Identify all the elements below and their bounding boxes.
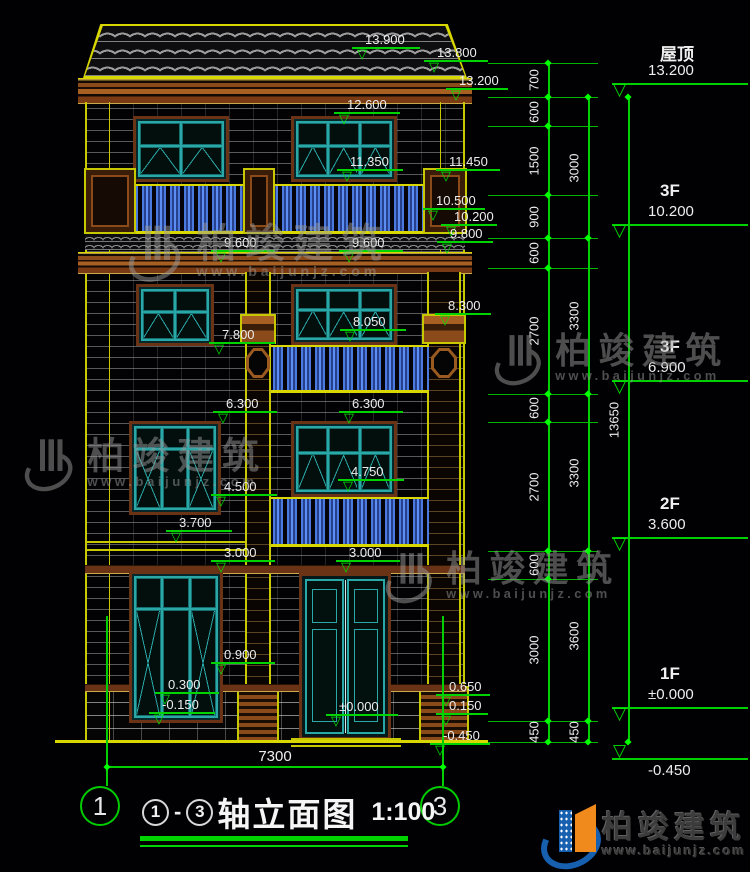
- floor-triangle-icon: ▽: [613, 82, 626, 97]
- floor-name: 3F: [660, 181, 680, 201]
- elevation-triangle-icon: ▽: [216, 560, 226, 573]
- elevation-marker: 4.750▽: [338, 464, 404, 481]
- elevation-marker: 8.050▽: [340, 314, 406, 331]
- pilaster-center-medallion: [246, 348, 270, 378]
- chain-tick: [544, 418, 551, 425]
- elevation-triangle-icon: ▽: [154, 712, 164, 725]
- elevation-marker: 12.600▽: [334, 97, 400, 114]
- elevation-marker: 0.300▽: [155, 677, 219, 694]
- elevation-marker: -0.150▽: [149, 697, 215, 714]
- window-pane: [298, 428, 327, 452]
- watermark-text: 柏竣建筑www.baijunjz.com: [555, 331, 728, 383]
- elevation-marker: 11.350▽: [337, 154, 403, 171]
- elevation-triangle-icon: ▽: [435, 743, 445, 756]
- footer-site: www.baijunjz.com: [602, 843, 746, 858]
- chain-dim-value: 600: [527, 242, 542, 264]
- cad-elevation-drawing: 7300 1 3 1 - 3 轴立面图 1:100 柏竣建筑 www.baiju…: [0, 0, 750, 872]
- elevation-triangle-icon: ▽: [357, 47, 367, 60]
- elevation-triangle-icon: ▽: [345, 329, 355, 342]
- chain-tick: [584, 738, 591, 745]
- floor-triangle-icon: ▽: [613, 706, 626, 721]
- chain-tick: [584, 234, 591, 241]
- axis-line-1: [106, 616, 108, 786]
- elevation-value: 10.200: [441, 209, 497, 224]
- elevation-marker: 13.200▽: [446, 73, 508, 90]
- floor-level-line: [612, 83, 748, 85]
- chain-tick: [544, 738, 551, 745]
- elevation-triangle-icon: ▽: [216, 494, 226, 507]
- elevation-triangle-icon: ▽: [344, 411, 354, 424]
- watermark-brand: 柏竣建筑: [446, 549, 619, 588]
- chain-dim-value: 3000: [527, 636, 542, 665]
- watermark-text: 柏竣建筑www.baijunjz.com: [196, 221, 390, 279]
- window-pane: [361, 123, 390, 145]
- logo-orange-tower-icon: [575, 804, 596, 852]
- watermark-text: 柏竣建筑www.baijunjz.com: [446, 549, 619, 601]
- elevation-marker: ±0.000▽: [326, 699, 398, 716]
- watermark-site: www.baijunjz.com: [555, 369, 728, 383]
- window-pane: [176, 291, 207, 311]
- watermark: 柏竣建筑www.baijunjz.com: [24, 434, 267, 490]
- elevation-marker: 13.900▽: [352, 32, 420, 49]
- elevation-triangle-icon: ▽: [451, 88, 461, 101]
- window-pane: [329, 291, 358, 309]
- extension-line: [488, 63, 598, 64]
- elevation-value: 3.700: [166, 515, 232, 530]
- window-pane: [143, 313, 174, 339]
- title-axis-to-circle: 3: [186, 799, 213, 826]
- elevation-triangle-icon: ▽: [440, 313, 450, 326]
- extension-line: [488, 97, 598, 98]
- window-pane: [298, 291, 327, 309]
- chain-dim-value: 3300: [567, 458, 582, 487]
- extension-line: [488, 742, 598, 743]
- chain-line: [548, 63, 550, 742]
- elevation-value: 0.900: [211, 647, 275, 662]
- elevation-marker: 10.500▽: [423, 193, 485, 210]
- title-axis-from-circle: 1: [142, 799, 169, 826]
- watermark-site: www.baijunjz.com: [196, 263, 390, 279]
- chain-dim-value: 450: [527, 721, 542, 743]
- chain-tick: [544, 717, 551, 724]
- chain-tick: [544, 390, 551, 397]
- elevation-value: 13.200: [446, 73, 508, 88]
- chain-dim-value: 450: [567, 721, 582, 743]
- chain-dim-value: 13650: [607, 401, 622, 437]
- watermark-brand: 柏竣建筑: [87, 435, 267, 475]
- window-pane: [163, 578, 188, 608]
- window-pane: [140, 123, 180, 145]
- chain-dim-value: 1500: [527, 146, 542, 175]
- axis-bubble-1: 1: [80, 786, 120, 826]
- elevation-triangle-icon: ▽: [441, 169, 451, 182]
- window-pane: [298, 454, 327, 490]
- floor-elevation: ±0.000: [648, 686, 694, 703]
- balcony-3f-right-railing: [271, 345, 429, 393]
- window-pane: [298, 147, 327, 175]
- elevation-marker: 0.150▽: [436, 698, 488, 715]
- watermark-site: www.baijunjz.com: [446, 587, 619, 601]
- title-underline-thin: [140, 845, 408, 847]
- window-pane: [298, 123, 327, 145]
- extension-line: [488, 394, 598, 395]
- window-pane: [329, 428, 358, 452]
- footer-brand: 柏竣建筑: [602, 802, 746, 847]
- elevation-triangle-icon: ▽: [442, 241, 452, 254]
- elevation-value: 8.050: [340, 314, 406, 329]
- watermark-brand: 柏竣建筑: [196, 221, 390, 265]
- floor-elevation: 13.200: [648, 62, 694, 79]
- title-dash: -: [174, 799, 181, 825]
- floor-name: 1F: [660, 664, 680, 684]
- elevation-triangle-icon: ▽: [342, 169, 352, 182]
- extension-line: [488, 422, 598, 423]
- title-scale: 1:100: [371, 798, 435, 827]
- elevation-marker: -0.450▽: [430, 728, 490, 745]
- elevation-marker: 0.650▽: [436, 679, 490, 696]
- chain-line: [588, 97, 590, 742]
- floor-level-line: [612, 707, 748, 709]
- window-pane: [140, 147, 180, 175]
- ground-line: [55, 740, 488, 743]
- chain-dim-value: 600: [527, 397, 542, 419]
- chain-tick: [544, 93, 551, 100]
- watermark-logo-icon: [128, 220, 189, 281]
- extension-line: [488, 126, 598, 127]
- window-stair-upper: [136, 284, 214, 346]
- elevation-value: 0.300: [155, 677, 219, 692]
- window-pane: [136, 578, 161, 608]
- elevation-triangle-icon: ▽: [216, 662, 226, 675]
- window-pane: [182, 147, 222, 175]
- elevation-triangle-icon: ▽: [341, 560, 351, 573]
- elevation-marker: 8.300▽: [435, 298, 491, 315]
- elevation-marker: 10.200▽: [441, 209, 497, 226]
- elevation-triangle-icon: ▽: [428, 208, 438, 221]
- elevation-value: 8.300: [435, 298, 491, 313]
- elevation-marker: 3.000▽: [211, 545, 275, 562]
- elevation-value: 13.800: [424, 45, 488, 60]
- drawing-title: 1 - 3 轴立面图 1:100: [142, 788, 435, 836]
- elevation-triangle-icon: ▽: [429, 60, 439, 73]
- elevation-value: 13.900: [352, 32, 420, 47]
- chain-dim-value: 3600: [567, 622, 582, 651]
- elevation-triangle-icon: ▽: [343, 479, 353, 492]
- bottom-dim-value: 7300: [245, 748, 305, 765]
- chain-tick: [584, 717, 591, 724]
- watermark-logo-icon: [494, 330, 548, 384]
- window-pane: [329, 123, 358, 145]
- watermark-brand: 柏竣建筑: [555, 331, 728, 370]
- chain-tick: [544, 191, 551, 198]
- pilaster-center-base: [237, 686, 279, 742]
- watermark-text: 柏竣建筑www.baijunjz.com: [87, 435, 267, 489]
- chain-tick: [544, 59, 551, 66]
- window-3f-left: [133, 116, 229, 182]
- chain-tick: [544, 234, 551, 241]
- chain-dim-value: 700: [527, 69, 542, 91]
- elevation-value: 10.500: [423, 193, 485, 208]
- elevation-triangle-icon: ▽: [171, 530, 181, 543]
- watermark-site: www.baijunjz.com: [87, 474, 267, 489]
- elevation-value: 11.450: [436, 154, 500, 169]
- elevation-marker: 3.700▽: [166, 515, 232, 532]
- elevation-value: ±0.000: [326, 699, 398, 714]
- elevation-triangle-icon: ▽: [331, 714, 341, 727]
- elevation-value: 4.750: [338, 464, 404, 479]
- elevation-value: 11.350: [337, 154, 403, 169]
- floor-elevation: 3.600: [648, 516, 686, 533]
- window-pane: [191, 578, 216, 608]
- floor-elevation: 10.200: [648, 203, 694, 220]
- chain-tick: [584, 390, 591, 397]
- window-pane: [298, 311, 327, 338]
- window-pane: [361, 428, 390, 452]
- elevation-marker: 0.900▽: [211, 647, 275, 664]
- chain-dim-value: 900: [527, 206, 542, 228]
- chain-tick: [544, 122, 551, 129]
- chain-dim-value: 2700: [527, 472, 542, 501]
- roof-cornice: [78, 78, 472, 104]
- watermark: 柏竣建筑www.baijunjz.com: [385, 548, 620, 602]
- elevation-marker: 9.800▽: [437, 226, 493, 243]
- chain-line: [628, 97, 630, 742]
- elevation-value: -0.450: [430, 728, 490, 743]
- dim-tick: [439, 763, 446, 770]
- elevation-triangle-icon: ▽: [339, 112, 349, 125]
- floor-name: 2F: [660, 494, 680, 514]
- floor-level-line: [612, 537, 748, 539]
- chain-dim-value: 3300: [567, 302, 582, 331]
- floor-triangle-icon: ▽: [613, 223, 626, 238]
- chain-dim-value: 3000: [567, 153, 582, 182]
- window-pane: [176, 313, 207, 339]
- logo-blue-tower-icon: [559, 810, 572, 852]
- footer-logo-mark: [540, 800, 602, 862]
- title-text: 轴立面图: [217, 788, 357, 836]
- elevation-value: 0.650: [436, 679, 490, 694]
- elevation-value: 9.800: [437, 226, 493, 241]
- watermark: 柏竣建筑www.baijunjz.com: [494, 330, 729, 384]
- chain-tick: [544, 264, 551, 271]
- watermark: 柏竣建筑www.baijunjz.com: [128, 220, 390, 281]
- floor-level-line: [612, 758, 748, 760]
- elevation-value: 0.150: [436, 698, 488, 713]
- floor-triangle-icon: ▽: [613, 743, 626, 758]
- elevation-value: 6.300: [213, 396, 277, 411]
- elevation-value: -0.150: [149, 697, 215, 712]
- elevation-marker: 11.450▽: [436, 154, 500, 171]
- extension-line: [488, 721, 598, 722]
- extension-line: [488, 195, 598, 196]
- elevation-marker: 13.800▽: [424, 45, 488, 62]
- window-pane: [361, 291, 390, 309]
- elevation-marker: 6.300▽: [213, 396, 277, 413]
- elevation-value: 12.600: [334, 97, 400, 112]
- extension-line: [488, 268, 598, 269]
- elevation-triangle-icon: ▽: [441, 713, 451, 726]
- elevation-triangle-icon: ▽: [218, 411, 228, 424]
- bottom-dim-line: [107, 766, 443, 768]
- watermark-logo-icon: [24, 434, 80, 490]
- window-pane: [182, 123, 222, 145]
- elevation-value: 6.300: [339, 396, 403, 411]
- dim-tick: [103, 763, 110, 770]
- elevation-marker: 7.800▽: [209, 327, 275, 344]
- watermark-logo-icon: [385, 548, 439, 602]
- window-pane: [143, 291, 174, 311]
- elevation-value: 7.800: [209, 327, 275, 342]
- elevation-value: 3.000: [211, 545, 275, 560]
- chain-dim-value: 600: [527, 101, 542, 123]
- floor-elevation: -0.450: [648, 762, 691, 779]
- extension-line: [488, 238, 598, 239]
- elevation-marker: 6.300▽: [339, 396, 403, 413]
- chain-tick: [584, 93, 591, 100]
- elevation-triangle-icon: ▽: [214, 342, 224, 355]
- title-underline-thick: [140, 836, 408, 841]
- balcony-2f-railing: [271, 497, 429, 547]
- floor-level-line: [612, 224, 748, 226]
- axis-number: 1: [93, 791, 107, 822]
